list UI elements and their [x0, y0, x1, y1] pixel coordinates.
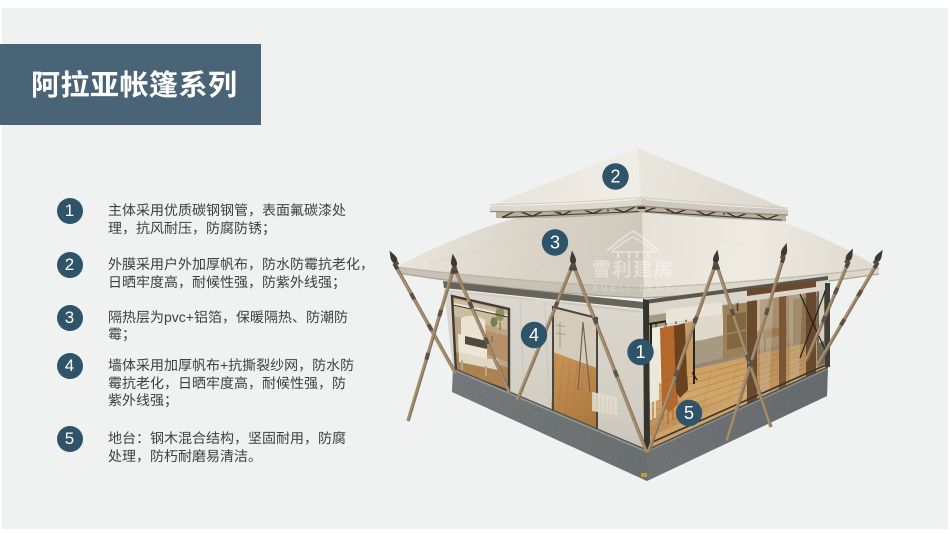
svg-text:XUELI TENT: XUELI TENT — [592, 283, 674, 293]
svg-text:2: 2 — [610, 167, 620, 187]
svg-text:1: 1 — [635, 342, 645, 362]
svg-text:雪利建房: 雪利建房 — [592, 255, 674, 282]
svg-text:4: 4 — [529, 325, 539, 345]
svg-text:3: 3 — [550, 233, 560, 253]
svg-text:5: 5 — [684, 403, 694, 423]
